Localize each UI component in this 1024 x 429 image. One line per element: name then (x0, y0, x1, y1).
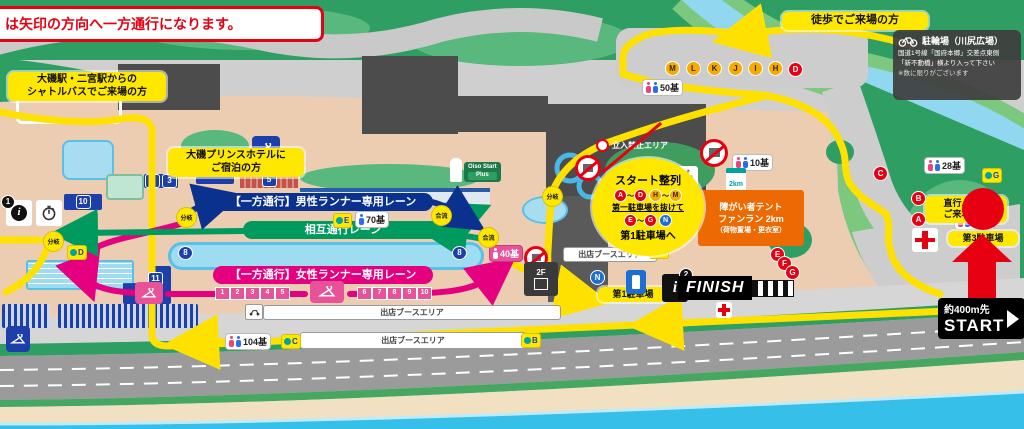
funrun-sign-text: 2km (729, 181, 743, 188)
eco-icon (524, 337, 531, 344)
toilet-count: 104基 (243, 335, 267, 348)
junction-label: 分岐 (546, 192, 558, 201)
lineup-letter: D (635, 190, 646, 201)
label-line: 大磯プリンスホテルに (172, 150, 300, 163)
lineup-letter: H (650, 190, 661, 201)
tent-line: 障がい者テント (719, 201, 782, 214)
hanger-icon (141, 288, 157, 299)
changing-tile: 4 (260, 287, 275, 300)
toilet-104: 104基 (226, 334, 270, 349)
female-icon (928, 164, 933, 171)
station-letter: C (292, 337, 298, 346)
changing-tile: 9 (402, 287, 417, 300)
label-walk: 徒歩でご来場の方 (782, 12, 928, 30)
oiso-sign-line: Oiso Start (468, 164, 497, 172)
station-letter: B (532, 336, 538, 345)
bicycle-parking-line: 国道1号線「国府本郷」交差点東側 (898, 49, 1016, 59)
station-letter: G (993, 171, 999, 180)
bicycle-parking-title: 駐輪場（川尻広場） (922, 34, 1003, 47)
male-icon (236, 340, 241, 347)
stopwatch-icon (41, 205, 57, 221)
timer-box (36, 200, 62, 226)
you-are-here-arrowhead (952, 234, 1012, 262)
junction-label: 合流 (482, 233, 494, 242)
elevator-icon (534, 278, 548, 290)
one-way-banner: は矢印の方向へ一方通行になります。 (0, 6, 324, 42)
block-marker-K: K (708, 62, 721, 75)
funrun-tent-box: 障がい者テント ファンラン 2km （荷物置場・更衣室） (698, 190, 804, 246)
toilet-40-female: 40基 (490, 246, 522, 261)
eco-icon (70, 249, 77, 256)
start-lineup-dest: 第1駐車場へ (620, 227, 676, 242)
label-line: 大磯駅・二宮駅からの (12, 74, 162, 87)
elevator-sign-2f: 2F (524, 262, 558, 296)
right-arrow-icon (1007, 310, 1019, 328)
block-marker-L: L (687, 62, 700, 75)
routes-layer (0, 0, 1024, 429)
info-icon: i (11, 205, 27, 221)
junction-branch-3: 分岐 (543, 187, 562, 206)
block-marker-H: H (769, 62, 782, 75)
lineup-letter: A (615, 190, 626, 201)
water-station-box (626, 270, 646, 294)
booth-area-1: 出店ブースエリア (263, 305, 561, 320)
toilet-count: 10基 (750, 156, 769, 169)
toilet-70: 70基 (356, 212, 388, 227)
pictogram (532, 254, 541, 261)
motorcycle-icon (249, 308, 260, 316)
pictogram (583, 164, 593, 172)
monument-icon (450, 158, 462, 182)
female-icon (493, 252, 498, 259)
toilet-count: 28基 (942, 159, 961, 172)
tent-line: （荷物置場・更衣室） (716, 226, 786, 236)
finish-text: FINISH (678, 276, 752, 300)
cloakroom-bottom (6, 326, 30, 352)
booth-label: 出店ブースエリア (380, 307, 444, 318)
changing-tile: 6 (357, 287, 372, 300)
start-lineup-bubble: スタート整列 A ～ D H ～ M 第一駐車場を抜けて E ～ G N 第1駐… (592, 158, 704, 256)
female-icon (736, 161, 741, 168)
block-marker-D: D (789, 63, 802, 76)
changing-tile: 1 (215, 287, 230, 300)
station-B: B (522, 334, 540, 347)
bottle-icon (632, 275, 640, 289)
no-camping-sign-1 (575, 155, 601, 181)
changing-tile: 2 (230, 287, 245, 300)
label-line: 徒歩でご来場の方 (786, 14, 924, 28)
start-text: START (944, 316, 1004, 336)
tilde: ～ (637, 216, 644, 226)
route-left-branch (0, 240, 48, 292)
toilet-count: 50基 (660, 81, 679, 94)
lineup-letter: E (625, 215, 636, 226)
label-hotel-guest: 大磯プリンスホテルに ご宿泊の方 (168, 148, 304, 177)
male-icon (653, 86, 658, 93)
event-venue-map: 10 2 3 4 6 7 5 11 (0, 0, 1024, 429)
male-icon (359, 218, 364, 225)
eco-icon (985, 172, 992, 179)
female-icon (646, 86, 651, 93)
block-marker-J: J (729, 62, 742, 75)
oiso-sign: Oiso Start Plus (450, 158, 501, 182)
hanger-icon (10, 334, 26, 345)
no-camping-sign-2 (700, 139, 728, 167)
finish-banner: FINISH (678, 276, 794, 300)
pool-number-8-right: 8 (452, 246, 467, 260)
toilet-count: 70基 (366, 213, 385, 226)
route-walk-arrow (746, 29, 912, 46)
label-line: ご宿泊の方 (172, 163, 300, 176)
booth-label: 出店ブースエリア (381, 335, 445, 346)
bicycle-parking-line: 「新不動橋」横より入って下さい (898, 59, 1016, 69)
block-marker-M: M (666, 62, 679, 75)
junction-label: 分岐 (180, 213, 192, 222)
busstop-A: A (912, 213, 925, 226)
bicycle-icon (898, 34, 918, 47)
bicycle-parking-box: 駐輪場（川尻広場） 国道1号線「国府本郷」交差点東側 「新不動橋」横より入って下… (893, 30, 1021, 100)
busstop-C: C (874, 167, 887, 180)
junction-branch-2: 分岐 (177, 208, 196, 227)
pool-number-8-left: 8 (178, 246, 193, 260)
lane-male-banner: 【一方通行】男性ランナー専用レーン (213, 193, 433, 211)
booth-area-2: 出店ブースエリア (300, 332, 526, 349)
junction-merge-1: 合流 (432, 206, 451, 225)
changing-tent-center (310, 281, 344, 303)
eco-icon (336, 217, 343, 224)
changing-tent-left (135, 282, 163, 304)
station-G: G (983, 169, 1001, 182)
one-way-banner-text: は矢印の方向へ一方通行になります。 (5, 16, 242, 32)
male-icon (743, 161, 748, 168)
info-icon: i (673, 279, 677, 297)
label-line: シャトルバスでご来場の方 (12, 87, 162, 100)
junction-branch-1: 分岐 (44, 232, 63, 251)
start-lineup-via: 第一駐車場を抜けて (612, 202, 684, 213)
start-lineup-title: スタート整列 (615, 172, 681, 188)
toilet-28: 28基 (925, 158, 964, 173)
changing-tile: 8 (387, 287, 402, 300)
label-shuttle-bus: 大磯駅・二宮駅からの シャトルバスでご来場の方 (8, 72, 166, 101)
info-number-badge: 1 (1, 195, 15, 209)
junction-merge-2: 合流 (479, 228, 498, 247)
block-marker-I: I (749, 62, 762, 75)
route-bottom-arrow-1 (662, 322, 700, 324)
lineup-letter: G (645, 215, 656, 226)
changing-tile: 3 (245, 287, 260, 300)
block-marker-N: N (591, 271, 604, 284)
first-aid-finish (716, 302, 732, 318)
station-C: C (282, 335, 300, 348)
changing-tile: 7 (372, 287, 387, 300)
station-D: D (68, 246, 86, 259)
tilde: ～ (627, 191, 634, 201)
lineup-letter: M (670, 190, 681, 201)
male-icon (935, 164, 940, 171)
station-letter: D (78, 248, 84, 257)
start-distance: 約400m先 (944, 301, 1004, 316)
funrun-sign: 2km (726, 168, 746, 192)
tilde: ～ (662, 191, 669, 201)
moto-parking-sign (245, 304, 263, 320)
eco-icon (284, 338, 291, 345)
finish-gantry (752, 280, 794, 297)
oiso-sign-line: Plus (468, 172, 497, 180)
station-E: E (334, 214, 351, 227)
junction-label: 分岐 (47, 237, 59, 246)
bicycle-parking-line: ※数に限りがございます (898, 69, 1016, 79)
busstop-B: B (912, 192, 925, 205)
you-are-here-dot (962, 188, 1004, 230)
route-mutual-right-in (449, 234, 478, 238)
junction-label: 合流 (435, 211, 447, 220)
changing-tile: 5 (275, 287, 290, 300)
toilet-count: 40基 (500, 247, 519, 260)
start-box: 約400m先 START (938, 298, 1024, 339)
station-letter: E (344, 216, 349, 225)
toilet-50: 50基 (643, 80, 682, 95)
hanger-icon (318, 286, 336, 298)
pictogram (709, 148, 720, 157)
route-mutual-left (80, 231, 243, 233)
female-icon (229, 340, 234, 347)
changing-tile: 10 (417, 287, 432, 300)
tent-line: ファンラン 2km (718, 213, 784, 226)
lineup-letter: N (660, 215, 671, 226)
first-aid-parking3 (912, 228, 938, 252)
no-entry-label: 立入禁止エリア (596, 139, 668, 152)
no-entry-icon (596, 139, 609, 152)
info-box-1: i 1 (6, 200, 32, 226)
floor-label: 2F (536, 268, 545, 277)
